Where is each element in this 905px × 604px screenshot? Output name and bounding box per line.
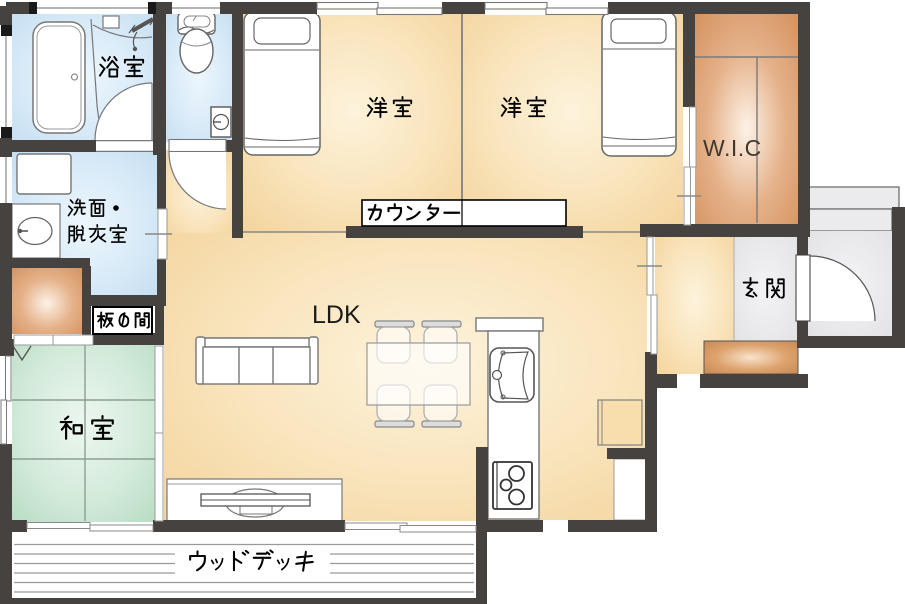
svg-text:W.I.C: W.I.C bbox=[703, 135, 762, 161]
svg-text:LDK: LDK bbox=[312, 301, 361, 329]
